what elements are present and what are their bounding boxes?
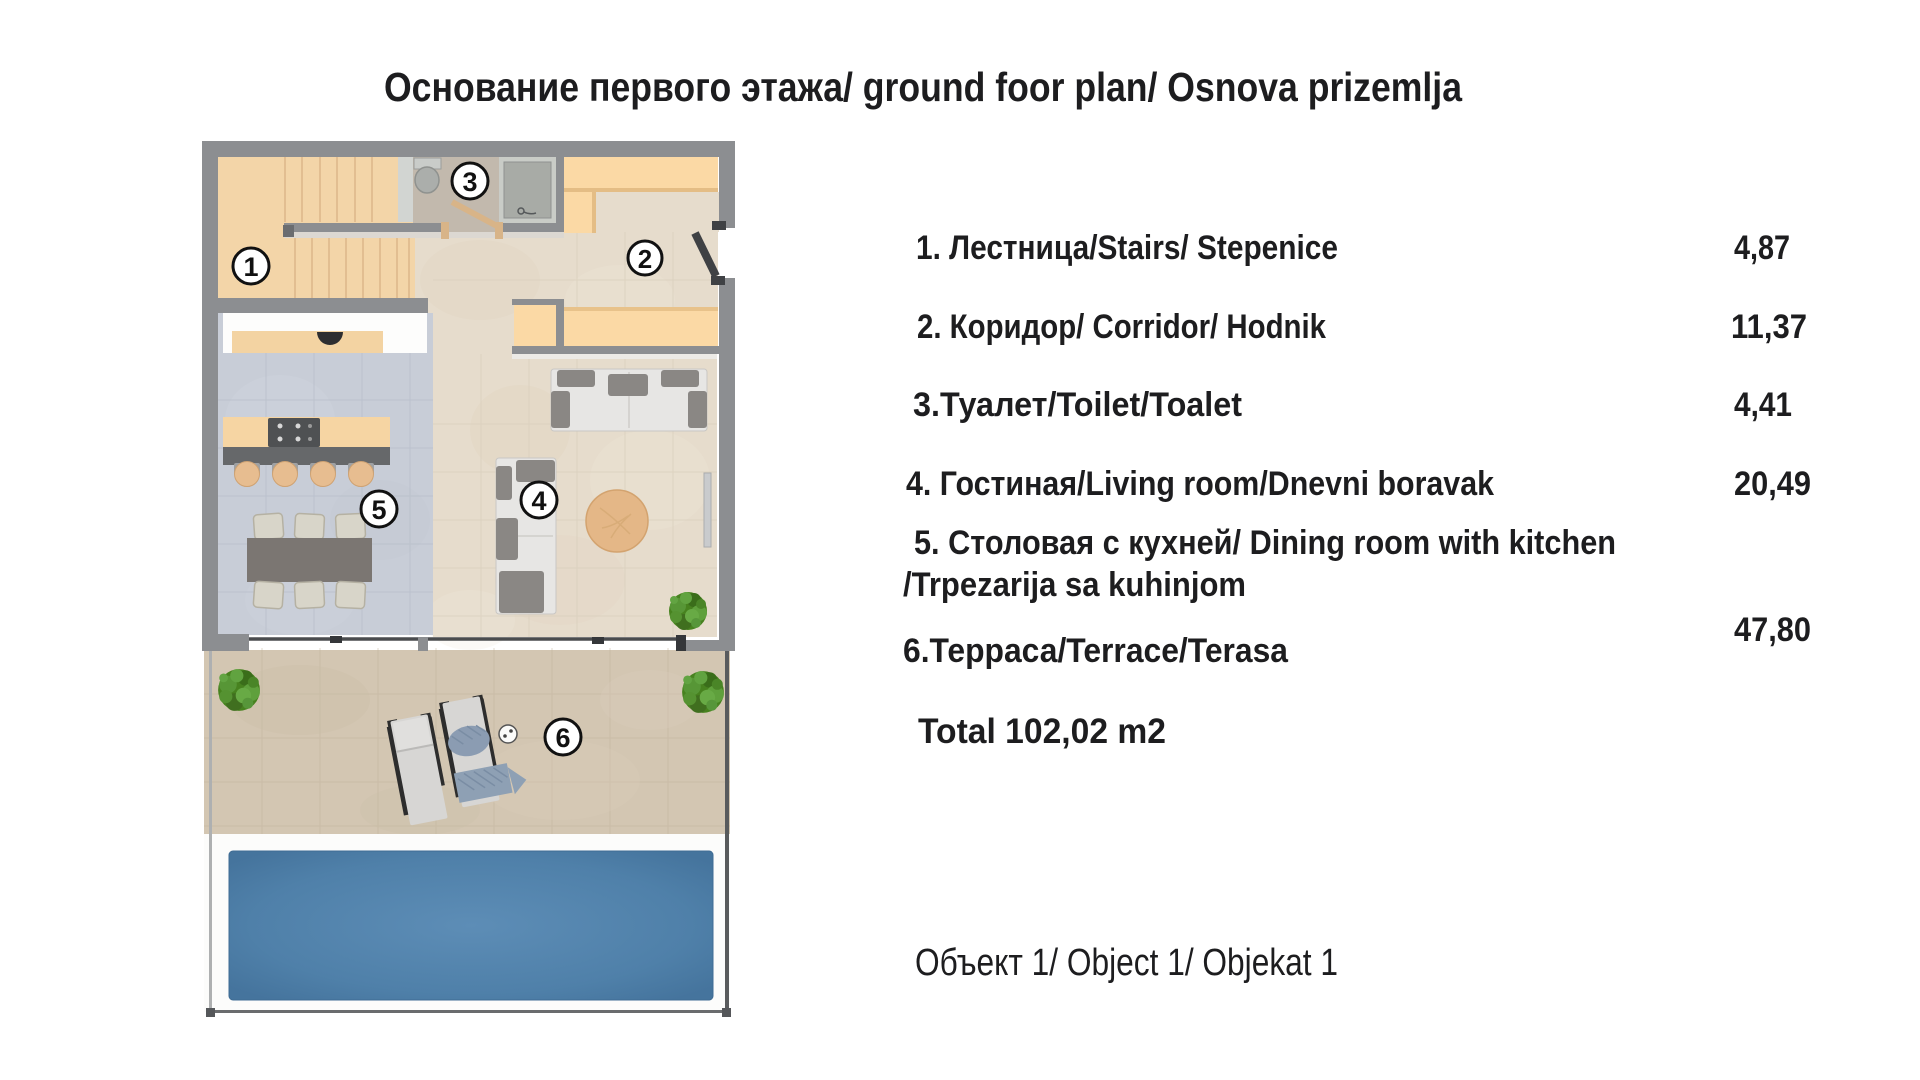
svg-text:6.Терраса/Terrace/Terasa: 6.Терраса/Terrace/Terasa: [903, 632, 1289, 670]
svg-text:5. Столовая с кухней/ Dining r: 5. Столовая с кухней/ Dining room with k…: [914, 524, 1616, 562]
svg-text:47,80: 47,80: [1734, 611, 1811, 649]
svg-text:2: 2: [638, 244, 652, 274]
svg-text:2. Коридор/ Corridor/ Hodnik: 2. Коридор/ Corridor/ Hodnik: [917, 308, 1326, 346]
svg-text:3.Туалет/Toilet/Toalet: 3.Туалет/Toilet/Toalet: [913, 386, 1242, 424]
svg-text:Total 102,02 m2: Total 102,02 m2: [918, 712, 1166, 751]
svg-text:/Trpezarija sa kuhinjom: /Trpezarija sa kuhinjom: [903, 566, 1246, 604]
svg-text:1: 1: [243, 252, 258, 282]
svg-text:Основание первого этажа/ groun: Основание первого этажа/ ground foor pla…: [384, 64, 1463, 110]
svg-text:4. Гостиная/Living room/Dnevni: 4. Гостиная/Living room/Dnevni boravak: [906, 465, 1494, 503]
svg-text:11,37: 11,37: [1731, 308, 1807, 346]
svg-text:20,49: 20,49: [1734, 465, 1811, 503]
svg-text:Объект 1/ Object 1/ Objekat 1: Объект 1/ Object 1/ Objekat 1: [915, 942, 1338, 984]
svg-text:4,41: 4,41: [1734, 386, 1792, 424]
svg-text:4,87: 4,87: [1734, 229, 1790, 267]
svg-text:4: 4: [531, 486, 546, 516]
svg-text:6: 6: [555, 723, 570, 753]
svg-text:3: 3: [462, 167, 477, 197]
svg-text:1. Лестница/Stairs/ Stepenice: 1. Лестница/Stairs/ Stepenice: [916, 229, 1338, 267]
svg-text:5: 5: [371, 495, 386, 525]
